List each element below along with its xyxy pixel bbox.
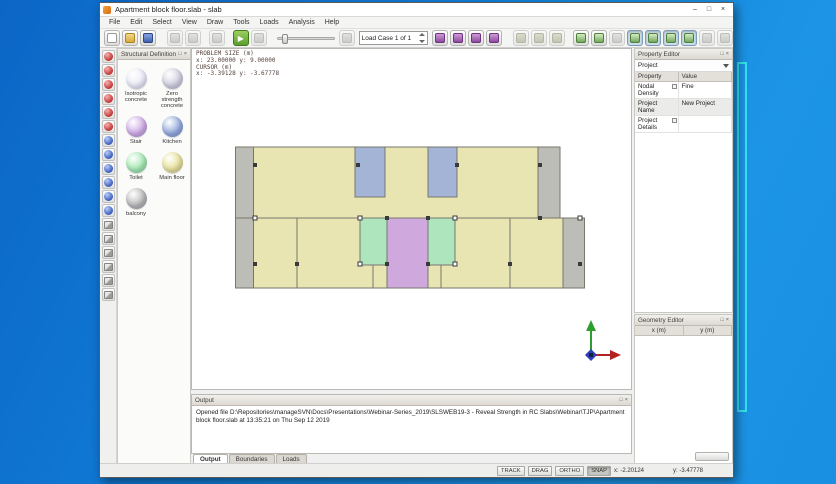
material-sphere bbox=[162, 116, 183, 137]
undo-button[interactable] bbox=[167, 30, 183, 46]
property-value[interactable]: New Project bbox=[679, 99, 732, 115]
stretch-icon bbox=[104, 206, 113, 215]
save-floppy-icon bbox=[143, 33, 153, 43]
panel-float-icon[interactable]: □ bbox=[720, 51, 723, 57]
draw-support-button[interactable] bbox=[102, 106, 115, 119]
draw-plate-button[interactable] bbox=[102, 50, 115, 63]
definition-label: Zero strength concrete bbox=[155, 91, 189, 109]
material-sphere bbox=[126, 116, 147, 137]
axis-triad bbox=[580, 317, 624, 365]
definition-stair[interactable]: Stair bbox=[118, 116, 154, 145]
display-option-button-2[interactable] bbox=[531, 30, 547, 46]
stop-analysis-button[interactable] bbox=[251, 30, 267, 46]
slider-thumb[interactable] bbox=[282, 34, 288, 44]
view-plates-button[interactable] bbox=[573, 30, 589, 46]
view-supports-button[interactable] bbox=[645, 30, 661, 46]
property-name: Project Details bbox=[635, 116, 679, 132]
view-columns-button[interactable] bbox=[591, 30, 607, 46]
property-name: Nodal Density bbox=[635, 82, 679, 98]
material-sphere bbox=[126, 68, 147, 89]
minimize-button[interactable]: – bbox=[688, 4, 702, 15]
material-sphere bbox=[162, 152, 183, 173]
results-shear-button[interactable] bbox=[450, 30, 466, 46]
track-toggle[interactable]: TRACK bbox=[497, 466, 525, 476]
move-icon bbox=[104, 150, 113, 159]
edit-stretch-button[interactable] bbox=[102, 204, 115, 217]
main-toolbar: ▶ Load Case 1 of 1 bbox=[100, 29, 733, 48]
opening-icon bbox=[104, 122, 113, 131]
open-file-button[interactable] bbox=[122, 30, 138, 46]
draw-beam-button[interactable] bbox=[102, 78, 115, 91]
status-bar: TRACK DRAG ORTHO SNAP x: -2.20124 y: -3.… bbox=[100, 463, 733, 477]
panel-close-icon[interactable]: × bbox=[625, 397, 628, 403]
open-folder-icon bbox=[125, 33, 135, 43]
definition-label: Stair bbox=[130, 139, 142, 145]
structural-definitions-header[interactable]: Structural Definitions □ × bbox=[118, 49, 190, 60]
menu-view[interactable]: View bbox=[177, 19, 202, 26]
definition-label: Kitchen bbox=[162, 139, 181, 145]
view-labels-button[interactable] bbox=[681, 30, 697, 46]
panel-close-icon[interactable]: × bbox=[726, 317, 729, 323]
delete-icon bbox=[212, 33, 222, 43]
menu-analysis[interactable]: Analysis bbox=[284, 19, 320, 26]
right-column: Property Editor □ × Project Property Val… bbox=[634, 48, 733, 465]
edit-rotate-button[interactable] bbox=[102, 190, 115, 203]
new-page-icon bbox=[107, 33, 117, 43]
property-scope-selector[interactable]: Project bbox=[635, 60, 732, 72]
menu-select[interactable]: Select bbox=[147, 19, 176, 26]
results-icon-1 bbox=[435, 33, 445, 43]
redo-button[interactable] bbox=[185, 30, 201, 46]
definition-label: balcony bbox=[126, 211, 146, 217]
display-icon-2 bbox=[534, 33, 544, 43]
view-icon-6 bbox=[666, 33, 676, 43]
expand-icon[interactable] bbox=[672, 118, 677, 123]
property-column-header: Property bbox=[635, 72, 679, 81]
property-scope-value: Project bbox=[638, 62, 723, 69]
results-icon-2 bbox=[453, 33, 463, 43]
draw-wall-button[interactable] bbox=[102, 92, 115, 105]
undo-icon bbox=[170, 33, 180, 43]
results-deflection-button[interactable] bbox=[468, 30, 484, 46]
view-3d-button-1[interactable] bbox=[102, 218, 115, 231]
display-option-button-1[interactable] bbox=[513, 30, 529, 46]
close-button[interactable]: × bbox=[716, 4, 730, 15]
view-icon-3 bbox=[612, 33, 622, 43]
delete-button[interactable] bbox=[209, 30, 225, 46]
material-sphere bbox=[162, 68, 183, 89]
value-column-header: Value bbox=[679, 72, 732, 81]
view-icon-7 bbox=[684, 33, 694, 43]
play-icon: ▶ bbox=[238, 34, 244, 43]
panel-float-icon[interactable]: □ bbox=[720, 317, 723, 323]
status-cursor-y: y: -3.47778 bbox=[673, 468, 729, 474]
structural-definitions-title: Structural Definitions bbox=[121, 51, 176, 58]
menu-help[interactable]: Help bbox=[320, 19, 344, 26]
property-editor-panel: Property Editor □ × Project Property Val… bbox=[634, 48, 733, 313]
edit-move-button[interactable] bbox=[102, 148, 115, 161]
output-message: Opened file D:\Repositories\manageSVN\Do… bbox=[192, 406, 631, 427]
menu-file[interactable]: File bbox=[104, 19, 125, 26]
geometry-editor-button[interactable] bbox=[695, 452, 729, 461]
panel-float-icon[interactable]: □ bbox=[619, 397, 622, 403]
node-icon bbox=[104, 136, 113, 145]
chevron-down-icon bbox=[723, 64, 729, 68]
floor-plan-drawing[interactable] bbox=[235, 145, 585, 290]
center-column: PROBLEM SIZE (m)x: 23.00000 y: 9.00000CU… bbox=[191, 48, 632, 465]
definition-toilet[interactable]: Toilet bbox=[118, 152, 154, 181]
menu-loads[interactable]: Loads bbox=[255, 19, 284, 26]
view-icon-8 bbox=[702, 33, 712, 43]
save-file-button[interactable] bbox=[140, 30, 156, 46]
view-icon-5 bbox=[648, 33, 658, 43]
property-row-nodal-density[interactable]: Nodal Density Fine bbox=[635, 82, 732, 99]
draw-column-button[interactable] bbox=[102, 64, 115, 77]
output-panel-header[interactable]: Output □ × bbox=[192, 395, 631, 406]
side-tool-strip bbox=[100, 48, 117, 465]
results-icon-3 bbox=[471, 33, 481, 43]
spinner-up-icon bbox=[419, 33, 425, 36]
cube-icon-6 bbox=[104, 291, 113, 299]
output-panel: Output □ × Opened file D:\Repositories\m… bbox=[191, 394, 632, 454]
new-file-button[interactable] bbox=[104, 30, 120, 46]
definition-label: Main floor bbox=[159, 175, 184, 181]
view-icon-4 bbox=[630, 33, 640, 43]
window-title: Apartment block floor.slab - slab bbox=[115, 5, 688, 14]
stop-icon bbox=[254, 33, 264, 43]
view-icon-1 bbox=[576, 33, 586, 43]
view-walls-button[interactable] bbox=[627, 30, 643, 46]
menu-tools[interactable]: Tools bbox=[228, 19, 254, 26]
view-3d-button-3[interactable] bbox=[102, 246, 115, 259]
desktop-background: Apartment block floor.slab - slab – □ × … bbox=[0, 0, 836, 484]
panel-close-icon[interactable]: × bbox=[184, 51, 187, 57]
results-icon-4 bbox=[489, 33, 499, 43]
main-region: Structural Definitions □ × Isotropic con… bbox=[100, 48, 733, 465]
view-extra-button-2[interactable] bbox=[717, 30, 733, 46]
draw-opening-button[interactable] bbox=[102, 120, 115, 133]
column-icon bbox=[104, 66, 113, 75]
plate-icon bbox=[104, 52, 113, 61]
property-table-header: Property Value bbox=[635, 72, 732, 82]
results-bending-button[interactable] bbox=[432, 30, 448, 46]
definition-main-floor[interactable]: Main floor bbox=[154, 152, 190, 181]
results-reinforcement-button[interactable] bbox=[486, 30, 502, 46]
definition-isotropic-concrete[interactable]: Isotropic concrete bbox=[118, 68, 154, 109]
slider-track[interactable] bbox=[277, 37, 335, 40]
material-sphere bbox=[126, 152, 147, 173]
cube-icon-3 bbox=[104, 249, 113, 257]
status-cursor-x: x: -2.20124 bbox=[614, 468, 670, 474]
wall-icon bbox=[104, 94, 113, 103]
edit-node-button[interactable] bbox=[102, 134, 115, 147]
scale-icon bbox=[342, 33, 352, 43]
display-icon-1 bbox=[516, 33, 526, 43]
property-editor-title: Property Editor bbox=[638, 51, 718, 58]
edit-mirror-button[interactable] bbox=[102, 176, 115, 189]
display-icon-3 bbox=[552, 33, 562, 43]
support-icon bbox=[104, 108, 113, 117]
run-analysis-button[interactable]: ▶ bbox=[233, 30, 249, 46]
load-case-selector[interactable]: Load Case 1 of 1 bbox=[359, 31, 428, 45]
geometry-table-header: x (m) y (m) bbox=[635, 326, 732, 336]
scale-reset-button[interactable] bbox=[339, 30, 355, 46]
property-row-project-details[interactable]: Project Details bbox=[635, 116, 732, 133]
view-icon-2 bbox=[594, 33, 604, 43]
panel-float-icon[interactable]: □ bbox=[178, 51, 181, 57]
maximize-button[interactable]: □ bbox=[702, 4, 716, 15]
cube-icon-5 bbox=[104, 277, 113, 285]
cube-icon-2 bbox=[104, 235, 113, 243]
property-value[interactable]: Fine bbox=[679, 82, 732, 98]
output-panel-title: Output bbox=[195, 397, 617, 404]
view-3d-button-5[interactable] bbox=[102, 274, 115, 287]
redo-icon bbox=[188, 33, 198, 43]
rotate-icon bbox=[104, 192, 113, 201]
y-column-header: y (m) bbox=[684, 326, 733, 335]
property-name: Project Name bbox=[635, 99, 679, 115]
expand-icon[interactable] bbox=[672, 84, 677, 89]
geometry-editor-panel: Geometry Editor □ × x (m) y (m) bbox=[634, 314, 733, 465]
screen-highlight-frame bbox=[737, 62, 747, 412]
app-window: Apartment block floor.slab - slab – □ × … bbox=[99, 2, 734, 478]
cube-icon-1 bbox=[104, 221, 113, 229]
snap-toggle[interactable]: SNAP bbox=[587, 466, 611, 476]
edit-copy-button[interactable] bbox=[102, 162, 115, 175]
copy-icon bbox=[104, 164, 113, 173]
definition-label: Isotropic concrete bbox=[119, 91, 153, 103]
definition-kitchen[interactable]: Kitchen bbox=[154, 116, 190, 145]
menu-bar: File Edit Select View Draw Tools Loads A… bbox=[100, 17, 733, 29]
view-3d-button-2[interactable] bbox=[102, 232, 115, 245]
title-bar[interactable]: Apartment block floor.slab - slab – □ × bbox=[100, 3, 733, 17]
geometry-editor-header[interactable]: Geometry Editor □ × bbox=[635, 315, 732, 326]
cube-icon-4 bbox=[104, 263, 113, 271]
canvas-info-readout: PROBLEM SIZE (m)x: 23.00000 y: 9.00000CU… bbox=[196, 51, 279, 78]
beam-icon bbox=[104, 80, 113, 89]
definition-zero-strength-concrete[interactable]: Zero strength concrete bbox=[154, 68, 190, 109]
geometry-editor-title: Geometry Editor bbox=[638, 317, 718, 324]
view-icon-9 bbox=[720, 33, 730, 43]
menu-edit[interactable]: Edit bbox=[125, 19, 147, 26]
drag-toggle[interactable]: DRAG bbox=[528, 466, 553, 476]
spinner-down-icon bbox=[419, 40, 425, 43]
view-extra-button-1[interactable] bbox=[699, 30, 715, 46]
drawing-canvas[interactable]: PROBLEM SIZE (m)x: 23.00000 y: 9.00000CU… bbox=[191, 48, 632, 390]
property-row-project-name[interactable]: Project Name New Project bbox=[635, 99, 732, 116]
view-3d-button-6[interactable] bbox=[102, 288, 115, 301]
x-column-header: x (m) bbox=[635, 326, 684, 335]
ortho-toggle[interactable]: ORTHO bbox=[555, 466, 584, 476]
load-case-label: Load Case 1 of 1 bbox=[362, 35, 412, 42]
display-option-button-3[interactable] bbox=[549, 30, 565, 46]
app-icon bbox=[103, 6, 111, 14]
structural-definitions-panel: Structural Definitions □ × Isotropic con… bbox=[117, 48, 191, 465]
view-beams-button[interactable] bbox=[609, 30, 625, 46]
load-case-spinner[interactable] bbox=[418, 33, 426, 43]
property-value[interactable] bbox=[679, 116, 732, 132]
view-3d-button-4[interactable] bbox=[102, 260, 115, 273]
view-loads-button[interactable] bbox=[663, 30, 679, 46]
property-editor-header[interactable]: Property Editor □ × bbox=[635, 49, 732, 60]
mirror-icon bbox=[104, 178, 113, 187]
structural-definitions-list: Isotropic concrete Zero strength concret… bbox=[118, 60, 190, 217]
scale-slider[interactable] bbox=[277, 37, 335, 40]
menu-draw[interactable]: Draw bbox=[202, 19, 228, 26]
definition-label: Toilet bbox=[129, 175, 143, 181]
material-sphere bbox=[126, 188, 147, 209]
panel-close-icon[interactable]: × bbox=[726, 51, 729, 57]
definition-balcony[interactable]: balcony bbox=[118, 188, 154, 217]
